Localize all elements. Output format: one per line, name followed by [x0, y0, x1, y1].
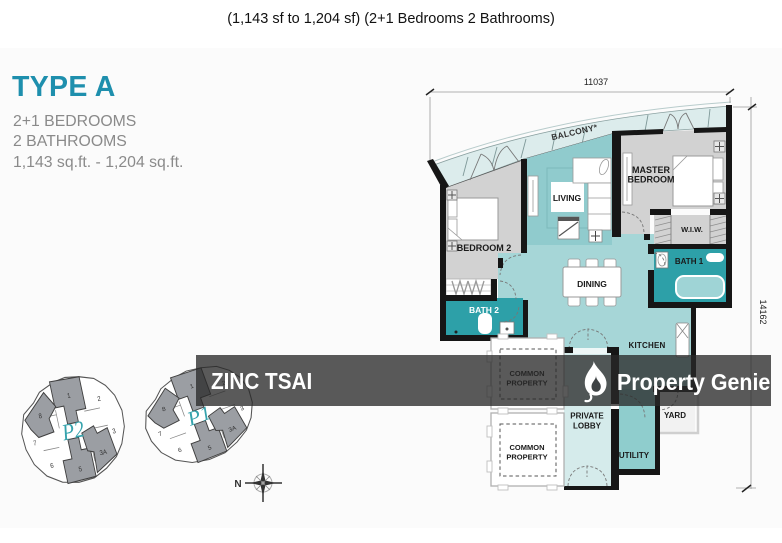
- svg-text:LOBBY: LOBBY: [573, 422, 602, 431]
- svg-text:BEDROOM 2: BEDROOM 2: [457, 243, 512, 253]
- svg-text:11037: 11037: [584, 77, 608, 87]
- svg-text:LIVING: LIVING: [553, 193, 582, 203]
- svg-text:14162: 14162: [758, 299, 768, 324]
- svg-text:UTILITY: UTILITY: [619, 451, 650, 460]
- svg-text:MASTER: MASTER: [632, 165, 671, 175]
- svg-text:COMMON: COMMON: [510, 443, 545, 452]
- svg-text:N: N: [234, 479, 241, 490]
- svg-text:PRIVATE: PRIVATE: [570, 412, 604, 421]
- svg-text:KITCHEN: KITCHEN: [629, 341, 666, 350]
- svg-text:BATH 1: BATH 1: [675, 257, 704, 266]
- svg-text:YARD: YARD: [664, 411, 686, 420]
- svg-text:PROPERTY: PROPERTY: [506, 453, 547, 462]
- svg-text:BEDROOM: BEDROOM: [628, 175, 675, 185]
- svg-text:W.I.W.: W.I.W.: [681, 225, 703, 234]
- svg-text:DINING: DINING: [577, 279, 607, 289]
- svg-text:BATH 2: BATH 2: [469, 305, 499, 315]
